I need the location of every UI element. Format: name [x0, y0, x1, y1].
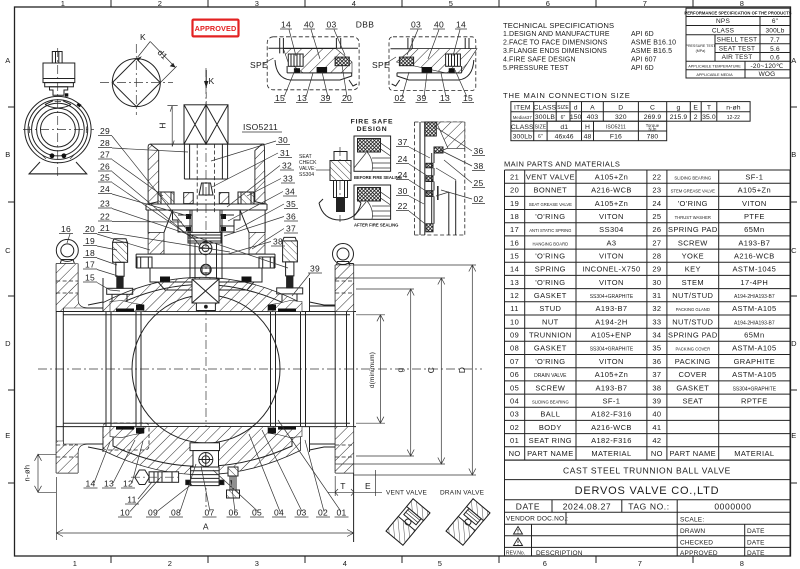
svg-text:PART NAME: PART NAME: [527, 449, 574, 458]
svg-text:33: 33: [283, 174, 293, 184]
svg-text:25: 25: [652, 212, 661, 221]
svg-text:SEAT RING: SEAT RING: [529, 436, 572, 445]
svg-text:A105+Zn: A105+Zn: [595, 172, 628, 181]
svg-text:ISO5211: ISO5211: [243, 122, 278, 132]
svg-text:ASTM-A105: ASTM-A105: [732, 344, 776, 353]
svg-text:21: 21: [510, 172, 519, 181]
svg-text:12: 12: [123, 479, 133, 489]
svg-text:4.FIRE SAFE DESIGN: 4.FIRE SAFE DESIGN: [503, 57, 576, 64]
svg-text:E: E: [365, 481, 371, 491]
svg-text:C: C: [5, 246, 11, 255]
svg-text:DATE: DATE: [747, 539, 765, 546]
svg-text:27: 27: [100, 150, 110, 160]
svg-text:4: 4: [352, 0, 357, 8]
svg-text:HANGING BOARD: HANGING BOARD: [533, 241, 569, 246]
svg-text:APPROVED: APPROVED: [680, 550, 718, 557]
svg-text:37: 37: [652, 370, 661, 379]
svg-text:37: 37: [398, 137, 408, 147]
svg-text:8: 8: [740, 559, 745, 568]
svg-text:20: 20: [510, 186, 519, 195]
svg-text:18: 18: [85, 248, 95, 258]
svg-text:YOKE: YOKE: [682, 251, 704, 260]
svg-text:API 6D: API 6D: [631, 31, 654, 38]
svg-text:SCREW: SCREW: [678, 238, 708, 247]
svg-text:A: A: [590, 104, 595, 111]
svg-text:10: 10: [120, 508, 130, 518]
svg-text:DRAWN: DRAWN: [680, 528, 705, 535]
svg-text:39: 39: [321, 93, 331, 103]
svg-text:C: C: [650, 104, 655, 111]
svg-text:NUT/STUD: NUT/STUD: [672, 317, 713, 326]
svg-text:SPE: SPE: [250, 60, 268, 70]
svg-text:INCONEL-X750: INCONEL-X750: [582, 265, 640, 274]
svg-text:N.m: N.m: [649, 127, 657, 132]
svg-text:MATERIAL: MATERIAL: [734, 449, 774, 458]
svg-text:d(minimum): d(minimum): [369, 352, 376, 388]
svg-text:VITON: VITON: [599, 357, 624, 366]
svg-text:ASME B16.10: ASME B16.10: [631, 40, 676, 47]
svg-text:n-øh: n-øh: [726, 104, 740, 111]
svg-text:06: 06: [510, 370, 519, 379]
svg-text:23: 23: [100, 199, 110, 209]
svg-text:DATE: DATE: [747, 550, 765, 557]
svg-text:COVER: COVER: [678, 370, 707, 379]
svg-text:PACKING COVER: PACKING COVER: [676, 347, 711, 352]
svg-text:20: 20: [85, 224, 95, 234]
svg-text:H: H: [585, 124, 590, 131]
svg-text:24: 24: [100, 184, 110, 194]
svg-text:PRESSURE TEST: PRESSURE TEST: [686, 44, 717, 48]
svg-text:KEY: KEY: [685, 265, 701, 274]
svg-text:04: 04: [510, 396, 519, 405]
svg-text:NO: NO: [651, 449, 663, 458]
svg-text:SS304: SS304: [599, 225, 624, 234]
svg-text:A: A: [791, 56, 796, 65]
svg-text:SIZE: SIZE: [535, 125, 547, 131]
svg-text:14: 14: [510, 265, 519, 274]
svg-text:NUT/STUD: NUT/STUD: [672, 291, 713, 300]
svg-text:SPRING PAD: SPRING PAD: [668, 225, 718, 234]
svg-text:'O'RING: 'O'RING: [535, 212, 565, 221]
svg-text:09: 09: [148, 508, 158, 518]
svg-text:ASME B16.5: ASME B16.5: [631, 48, 672, 55]
svg-text:14: 14: [85, 479, 95, 489]
svg-text:8: 8: [740, 0, 745, 8]
svg-text:g: g: [395, 367, 405, 372]
svg-text:D: D: [5, 339, 11, 348]
svg-text:26: 26: [100, 162, 110, 172]
svg-text:SLIDING BEARING: SLIDING BEARING: [674, 175, 711, 180]
svg-text:A216-WCB: A216-WCB: [591, 186, 632, 195]
svg-text:CLASS: CLASS: [712, 28, 735, 35]
svg-text:MAIN PARTS AND MATERIALS: MAIN PARTS AND MATERIALS: [504, 160, 620, 169]
svg-text:K: K: [209, 76, 215, 86]
svg-text:41: 41: [652, 423, 661, 432]
svg-text:38: 38: [473, 161, 483, 171]
svg-text:2024.08.27: 2024.08.27: [563, 502, 612, 512]
svg-text:40: 40: [434, 20, 444, 30]
svg-text:d1: d1: [560, 124, 568, 131]
svg-text:E: E: [5, 431, 10, 440]
svg-text:K: K: [140, 32, 146, 42]
svg-text:5: 5: [449, 0, 454, 8]
svg-text:STUD: STUD: [539, 304, 561, 313]
svg-text:SS304+GRAPHITE: SS304+GRAPHITE: [590, 347, 634, 353]
svg-text:STEM GREASE VALVE: STEM GREASE VALVE: [671, 189, 715, 194]
svg-text:VITON: VITON: [599, 212, 624, 221]
svg-text:2: 2: [168, 559, 173, 568]
svg-text:0.6: 0.6: [770, 55, 780, 62]
svg-text:T: T: [707, 104, 711, 111]
svg-text:15: 15: [510, 251, 519, 260]
svg-text:NO: NO: [509, 449, 521, 458]
svg-text:DATE: DATE: [516, 502, 540, 512]
svg-text:36: 36: [473, 146, 483, 156]
svg-text:02: 02: [510, 423, 519, 432]
svg-text:'O'RING: 'O'RING: [535, 251, 565, 260]
svg-text:15: 15: [275, 93, 285, 103]
svg-text:6": 6": [561, 115, 566, 121]
svg-text:DERVOS VALVE CO.,LTD: DERVOS VALVE CO.,LTD: [575, 485, 720, 497]
svg-text:2: 2: [158, 0, 163, 8]
svg-text:31: 31: [652, 291, 661, 300]
svg-text:0000000: 0000000: [714, 502, 751, 512]
svg-text:TAG NO.:: TAG NO.:: [628, 502, 669, 512]
svg-text:D: D: [791, 339, 797, 348]
svg-text:32: 32: [652, 304, 661, 313]
svg-text:A194-2H: A194-2H: [595, 317, 627, 326]
svg-text:05: 05: [510, 383, 519, 392]
svg-text:03: 03: [510, 410, 519, 419]
svg-text:CHECKED: CHECKED: [680, 539, 713, 546]
svg-text:16: 16: [61, 224, 71, 234]
svg-text:ASTM-A105: ASTM-A105: [732, 370, 776, 379]
svg-text:26: 26: [652, 225, 661, 234]
svg-text:36: 36: [286, 212, 296, 222]
svg-text:24: 24: [652, 199, 661, 208]
svg-text:37: 37: [286, 224, 296, 234]
svg-text:300LB: 300LB: [535, 114, 556, 121]
svg-text:THE MAIN CONNECTION SIZE: THE MAIN CONNECTION SIZE: [503, 91, 631, 100]
svg-text:BODY: BODY: [539, 423, 562, 432]
svg-text:T: T: [340, 481, 346, 491]
svg-text:AIR TEST: AIR TEST: [722, 54, 753, 61]
svg-text:28: 28: [652, 251, 661, 260]
svg-text:PERFORMANCE SPECIFICATION OF T: PERFORMANCE SPECIFICATION OF THE PRODUCT…: [684, 10, 791, 15]
svg-text:7: 7: [643, 0, 648, 8]
svg-text:150: 150: [570, 114, 582, 121]
svg-text:API 6D: API 6D: [631, 65, 654, 72]
svg-text:33: 33: [652, 317, 661, 326]
svg-text:34: 34: [652, 331, 661, 340]
svg-text:VITON: VITON: [599, 251, 624, 260]
svg-text:C: C: [791, 246, 797, 255]
svg-text:DRAIN VALVE: DRAIN VALVE: [534, 373, 567, 379]
svg-text:12-22: 12-22: [727, 115, 740, 121]
svg-text:A193-B7: A193-B7: [738, 238, 770, 247]
svg-text:SPRING PAD: SPRING PAD: [668, 331, 718, 340]
svg-text:A194-2H/A193-B7: A194-2H/A193-B7: [734, 320, 775, 326]
svg-text:5.PRESSURE TEST: 5.PRESSURE TEST: [503, 65, 569, 72]
svg-text:SF-1: SF-1: [603, 396, 621, 405]
svg-text:40: 40: [652, 410, 661, 419]
svg-text:SLIDING BEARING: SLIDING BEARING: [532, 399, 569, 404]
svg-text:SS304: SS304: [299, 172, 314, 178]
svg-text:GRAPHITE: GRAPHITE: [734, 357, 776, 366]
svg-text:DRAIN VALVE: DRAIN VALVE: [440, 490, 485, 497]
svg-text:24: 24: [398, 154, 408, 164]
svg-text:H: H: [158, 122, 168, 128]
svg-text:A216-WCB: A216-WCB: [591, 423, 632, 432]
svg-text:03: 03: [326, 20, 336, 30]
svg-text:39: 39: [310, 264, 320, 274]
svg-text:'O'RING: 'O'RING: [678, 199, 708, 208]
svg-text:SEAT TEST: SEAT TEST: [719, 46, 755, 53]
svg-text:g: g: [677, 104, 681, 111]
svg-text:300Lb: 300Lb: [513, 133, 533, 140]
svg-text:APPLICABLE TEMPERATURE: APPLICABLE TEMPERATURE: [688, 64, 741, 68]
svg-text:THRUST WASHER: THRUST WASHER: [675, 215, 711, 220]
svg-text:22: 22: [398, 201, 408, 211]
svg-text:29: 29: [652, 265, 661, 274]
svg-text:SCALE:: SCALE:: [680, 517, 704, 524]
svg-text:APPROVED: APPROVED: [195, 24, 237, 33]
svg-text:VITON: VITON: [742, 199, 767, 208]
svg-text:SHELL TEST: SHELL TEST: [717, 37, 758, 44]
svg-text:18: 18: [510, 212, 519, 221]
svg-text:A182-F316: A182-F316: [591, 436, 632, 445]
svg-text:B: B: [791, 150, 796, 159]
svg-text:SF-1: SF-1: [745, 172, 763, 181]
svg-text:DATE: DATE: [747, 528, 765, 535]
svg-text:6": 6": [772, 18, 779, 25]
svg-text:A105+ENP: A105+ENP: [591, 331, 632, 340]
svg-text:36: 36: [652, 357, 661, 366]
svg-text:300Lb: 300Lb: [765, 28, 784, 35]
svg-text:PART NAME: PART NAME: [670, 449, 717, 458]
svg-text:SIZE: SIZE: [557, 105, 569, 111]
svg-text:DBB: DBB: [356, 20, 374, 30]
svg-text:1: 1: [61, 0, 66, 8]
svg-text:22: 22: [652, 172, 661, 181]
svg-text:PACKING: PACKING: [675, 357, 711, 366]
svg-text:16: 16: [510, 238, 519, 247]
svg-text:11: 11: [510, 304, 519, 313]
svg-text:3: 3: [255, 0, 260, 8]
svg-text:d: d: [574, 104, 578, 111]
svg-text:12: 12: [510, 291, 519, 300]
svg-text:17: 17: [85, 260, 95, 270]
svg-text:23: 23: [652, 186, 661, 195]
svg-text:7.7: 7.7: [770, 37, 780, 44]
svg-text:PTFE: PTFE: [744, 212, 765, 221]
svg-text:39: 39: [416, 93, 426, 103]
svg-text:A105+Zn: A105+Zn: [595, 370, 628, 379]
svg-text:403: 403: [587, 114, 599, 121]
svg-text:C: C: [426, 367, 436, 373]
svg-text:VENT VALVE: VENT VALVE: [386, 490, 427, 497]
svg-text:1: 1: [73, 559, 78, 568]
svg-text:19: 19: [510, 199, 519, 208]
svg-text:TECHNICAL SPECIFICATIONS: TECHNICAL SPECIFICATIONS: [503, 21, 614, 30]
svg-text:38: 38: [652, 383, 661, 392]
svg-text:1.DESIGN AND MANUFACTURE: 1.DESIGN AND MANUFACTURE: [503, 31, 610, 38]
svg-text:40: 40: [304, 20, 314, 30]
svg-text:BONNET: BONNET: [534, 186, 568, 195]
svg-text:320: 320: [615, 114, 627, 121]
svg-text:WOG: WOG: [759, 71, 776, 78]
svg-text:ISO5211: ISO5211: [606, 125, 626, 131]
svg-text:Medias37: Medias37: [513, 115, 533, 120]
svg-text:38: 38: [273, 237, 283, 247]
svg-text:(MPa): (MPa): [696, 49, 706, 53]
svg-text:48: 48: [584, 133, 592, 140]
svg-text:SEAT: SEAT: [682, 396, 703, 405]
svg-text:API 607: API 607: [631, 57, 657, 64]
svg-text:A182-F316: A182-F316: [591, 410, 632, 419]
svg-text:31: 31: [280, 148, 290, 158]
svg-text:42: 42: [652, 436, 661, 445]
svg-text:A216-WCB: A216-WCB: [734, 251, 775, 260]
svg-text:65Mn: 65Mn: [744, 225, 764, 234]
svg-text:'O'RING: 'O'RING: [535, 357, 565, 366]
svg-text:VENT VALVE: VENT VALVE: [526, 172, 575, 181]
svg-text:APPLICABLE MEDIA: APPLICABLE MEDIA: [696, 73, 733, 77]
svg-text:PACKING GLAND: PACKING GLAND: [676, 307, 710, 312]
svg-text:NPS: NPS: [716, 18, 730, 25]
svg-text:DESCRIPTION: DESCRIPTION: [536, 550, 583, 557]
svg-text:A: A: [203, 522, 209, 532]
svg-text:24: 24: [398, 170, 408, 180]
svg-text:D: D: [618, 104, 623, 111]
svg-text:ANTI STATIC SPRING: ANTI STATIC SPRING: [529, 228, 571, 233]
svg-text:DESIGN: DESIGN: [357, 126, 388, 133]
svg-text:13: 13: [104, 479, 114, 489]
svg-text:2.FACE TO FACE DIMENSIONS: 2.FACE TO FACE DIMENSIONS: [503, 40, 608, 47]
svg-text:VENDOR DOC.NO.:: VENDOR DOC.NO.:: [506, 516, 568, 523]
svg-text:SCREW: SCREW: [535, 383, 565, 392]
svg-text:STEM: STEM: [682, 278, 704, 287]
svg-text:17: 17: [510, 225, 519, 234]
svg-text:GASKET: GASKET: [676, 383, 709, 392]
svg-text:A194-2H/A193-B7: A194-2H/A193-B7: [734, 294, 775, 300]
svg-text:5.6: 5.6: [770, 46, 780, 53]
svg-text:09: 09: [510, 331, 519, 340]
svg-text:VITON: VITON: [599, 278, 624, 287]
svg-text:269.9: 269.9: [644, 114, 662, 121]
svg-text:34: 34: [285, 187, 295, 197]
svg-text:01: 01: [336, 508, 346, 518]
svg-text:E: E: [791, 431, 796, 440]
svg-text:A193-B7: A193-B7: [595, 304, 627, 313]
svg-text:215.9: 215.9: [670, 114, 688, 121]
svg-text:4: 4: [343, 559, 348, 568]
svg-text:65Mn: 65Mn: [744, 331, 764, 340]
svg-text:-20~120℃: -20~120℃: [751, 63, 784, 70]
svg-text:17-4PH: 17-4PH: [740, 278, 768, 287]
svg-text:25: 25: [100, 173, 110, 183]
svg-text:SS304+GRAPHITE: SS304+GRAPHITE: [590, 294, 634, 300]
svg-text:D: D: [457, 367, 467, 373]
svg-text:13: 13: [510, 278, 519, 287]
svg-text:AFTER FIRE SEALING: AFTER FIRE SEALING: [354, 223, 398, 228]
svg-text:27: 27: [652, 238, 661, 247]
svg-text:3.FLANGE ENDS DIMENSIONS: 3.FLANGE ENDS DIMENSIONS: [503, 48, 607, 55]
svg-text:5: 5: [438, 559, 443, 568]
svg-text:F16: F16: [610, 133, 622, 140]
svg-text:SPE: SPE: [372, 60, 390, 70]
svg-text:780: 780: [647, 133, 659, 140]
svg-text:15: 15: [463, 93, 473, 103]
svg-text:CAST STEEL TRUNNION BALL VALVE: CAST STEEL TRUNNION BALL VALVE: [563, 466, 731, 476]
svg-text:03: 03: [296, 508, 306, 518]
svg-text:06: 06: [228, 508, 238, 518]
svg-text:ASTM-A105: ASTM-A105: [732, 304, 776, 313]
svg-text:28: 28: [100, 138, 110, 148]
svg-text:07: 07: [510, 357, 519, 366]
svg-text:20: 20: [342, 93, 352, 103]
svg-text:13: 13: [440, 93, 450, 103]
svg-text:11: 11: [127, 495, 136, 505]
svg-text:3: 3: [255, 559, 260, 568]
svg-text:46x46: 46x46: [555, 133, 574, 140]
svg-text:6: 6: [543, 559, 548, 568]
svg-text:35: 35: [286, 199, 296, 209]
svg-text:MATERIAL: MATERIAL: [591, 449, 631, 458]
svg-text:15: 15: [85, 273, 95, 283]
svg-text:14: 14: [456, 20, 466, 30]
svg-text:08: 08: [171, 508, 181, 518]
svg-text:GASKET: GASKET: [534, 291, 567, 300]
svg-text:SS304+GRAPHITE: SS304+GRAPHITE: [733, 386, 777, 392]
svg-text:30: 30: [398, 186, 408, 196]
svg-text:B: B: [5, 150, 10, 159]
svg-text:ITEM: ITEM: [514, 104, 531, 111]
svg-text:02: 02: [473, 194, 483, 204]
svg-text:35.0: 35.0: [702, 114, 716, 121]
svg-text:RPTFE: RPTFE: [741, 396, 768, 405]
svg-text:25: 25: [473, 178, 483, 188]
svg-text:03: 03: [411, 20, 421, 30]
svg-text:6": 6": [538, 134, 543, 140]
svg-text:A: A: [5, 56, 10, 65]
svg-text:GASKET: GASKET: [534, 344, 567, 353]
svg-text:32: 32: [282, 161, 292, 171]
svg-text:NUT: NUT: [542, 317, 559, 326]
svg-text:A105+Zn: A105+Zn: [595, 199, 628, 208]
svg-text:7: 7: [638, 559, 643, 568]
svg-text:35: 35: [652, 344, 661, 353]
svg-text:2: 2: [694, 114, 698, 121]
svg-text:CLASS: CLASS: [534, 104, 557, 111]
svg-text:REV.No.: REV.No.: [506, 551, 525, 557]
svg-text:n-øh: n-øh: [23, 464, 32, 481]
svg-text:01: 01: [510, 436, 519, 445]
svg-text:6: 6: [546, 0, 551, 8]
svg-text:21: 21: [100, 223, 110, 233]
svg-text:FIRE SAFE: FIRE SAFE: [351, 119, 394, 126]
svg-text:13: 13: [297, 93, 307, 103]
svg-text:E: E: [693, 104, 698, 111]
svg-text:A105+Zn: A105+Zn: [738, 186, 771, 195]
svg-text:'O'RING: 'O'RING: [535, 278, 565, 287]
svg-text:TRUNNION: TRUNNION: [529, 331, 572, 340]
svg-text:14: 14: [281, 20, 291, 30]
svg-text:30: 30: [278, 135, 288, 145]
svg-text:08: 08: [510, 344, 519, 353]
svg-text:05: 05: [252, 508, 262, 518]
svg-text:SPRING: SPRING: [535, 265, 566, 274]
